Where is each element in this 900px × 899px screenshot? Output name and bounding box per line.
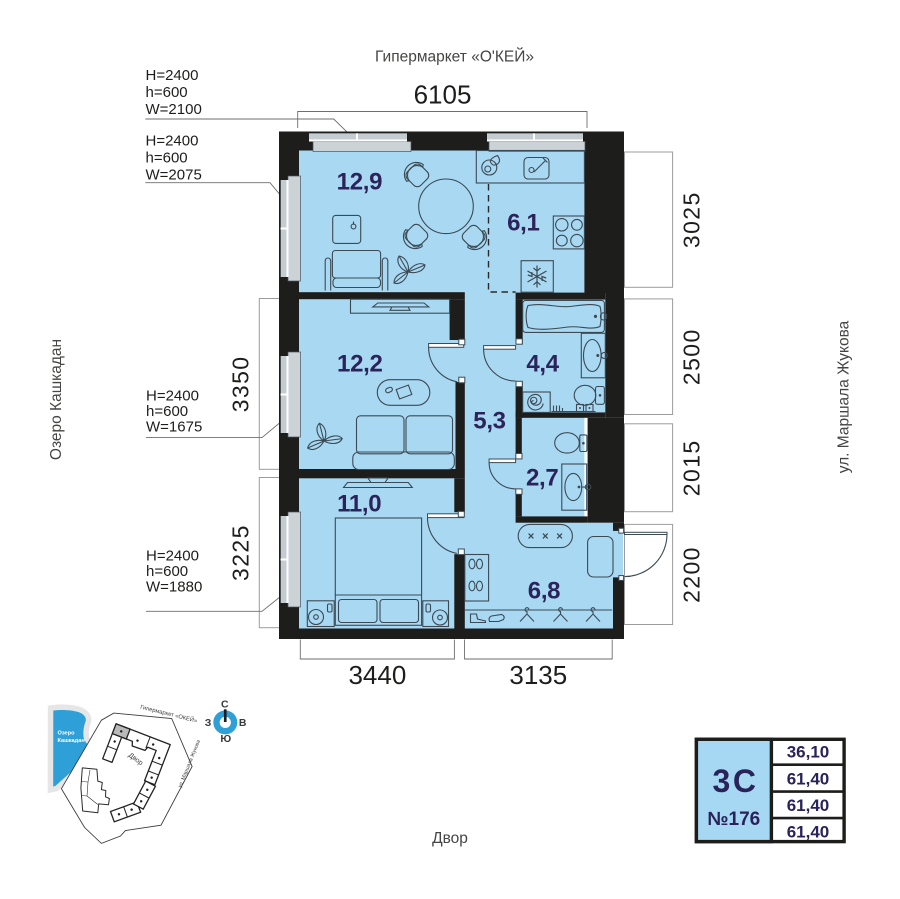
- svg-text:12,9: 12,9: [337, 169, 383, 196]
- svg-text:H=2400: H=2400: [146, 132, 199, 149]
- svg-text:H=2400: H=2400: [146, 67, 199, 84]
- svg-text:61,40: 61,40: [787, 796, 830, 815]
- svg-text:6,8: 6,8: [528, 578, 560, 605]
- svg-text:Кашкадан: Кашкадан: [58, 738, 85, 744]
- svg-text:В: В: [239, 717, 247, 729]
- svg-text:4,4: 4,4: [526, 351, 559, 378]
- svg-text:Ю: Ю: [220, 733, 231, 745]
- svg-text:№176: №176: [707, 809, 760, 830]
- svg-text:h=600: h=600: [146, 149, 188, 166]
- svg-text:2200: 2200: [679, 546, 705, 603]
- svg-text:3225: 3225: [228, 524, 254, 581]
- svg-text:36,10: 36,10: [787, 742, 830, 761]
- svg-text:W=2100: W=2100: [146, 101, 202, 118]
- svg-text:С: С: [221, 699, 229, 711]
- svg-text:W=1675: W=1675: [146, 418, 202, 435]
- svg-text:3С: 3С: [713, 763, 759, 799]
- svg-text:З: З: [205, 717, 212, 729]
- svg-text:3440: 3440: [348, 660, 406, 690]
- svg-text:H=2400: H=2400: [146, 387, 199, 404]
- svg-text:12,2: 12,2: [337, 350, 383, 377]
- svg-text:Двор: Двор: [432, 830, 468, 847]
- svg-text:h=600: h=600: [146, 403, 188, 420]
- svg-text:Озеро Кашкадан: Озеро Кашкадан: [48, 339, 65, 460]
- svg-text:6,1: 6,1: [507, 210, 539, 237]
- svg-text:61,40: 61,40: [787, 822, 830, 841]
- svg-text:2015: 2015: [679, 439, 705, 496]
- svg-text:W=2075: W=2075: [146, 166, 202, 183]
- svg-text:5,3: 5,3: [473, 408, 505, 435]
- svg-text:3135: 3135: [509, 660, 567, 690]
- svg-text:H=2400: H=2400: [146, 547, 199, 564]
- svg-text:Гипермаркет «О'КЕЙ»: Гипермаркет «О'КЕЙ»: [375, 48, 534, 66]
- svg-text:h=600: h=600: [146, 84, 188, 101]
- svg-text:h=600: h=600: [146, 563, 188, 580]
- svg-text:11,0: 11,0: [337, 490, 381, 517]
- svg-text:61,40: 61,40: [787, 769, 830, 788]
- svg-text:W=1880: W=1880: [146, 578, 202, 595]
- svg-text:2,7: 2,7: [526, 465, 558, 492]
- svg-text:6105: 6105: [414, 80, 472, 110]
- svg-text:2500: 2500: [679, 328, 705, 385]
- svg-text:3025: 3025: [679, 191, 705, 248]
- svg-text:Озеро: Озеро: [58, 731, 76, 737]
- svg-text:ул. Маршала Жукова: ул. Маршала Жукова: [836, 320, 853, 473]
- svg-text:3350: 3350: [228, 356, 254, 413]
